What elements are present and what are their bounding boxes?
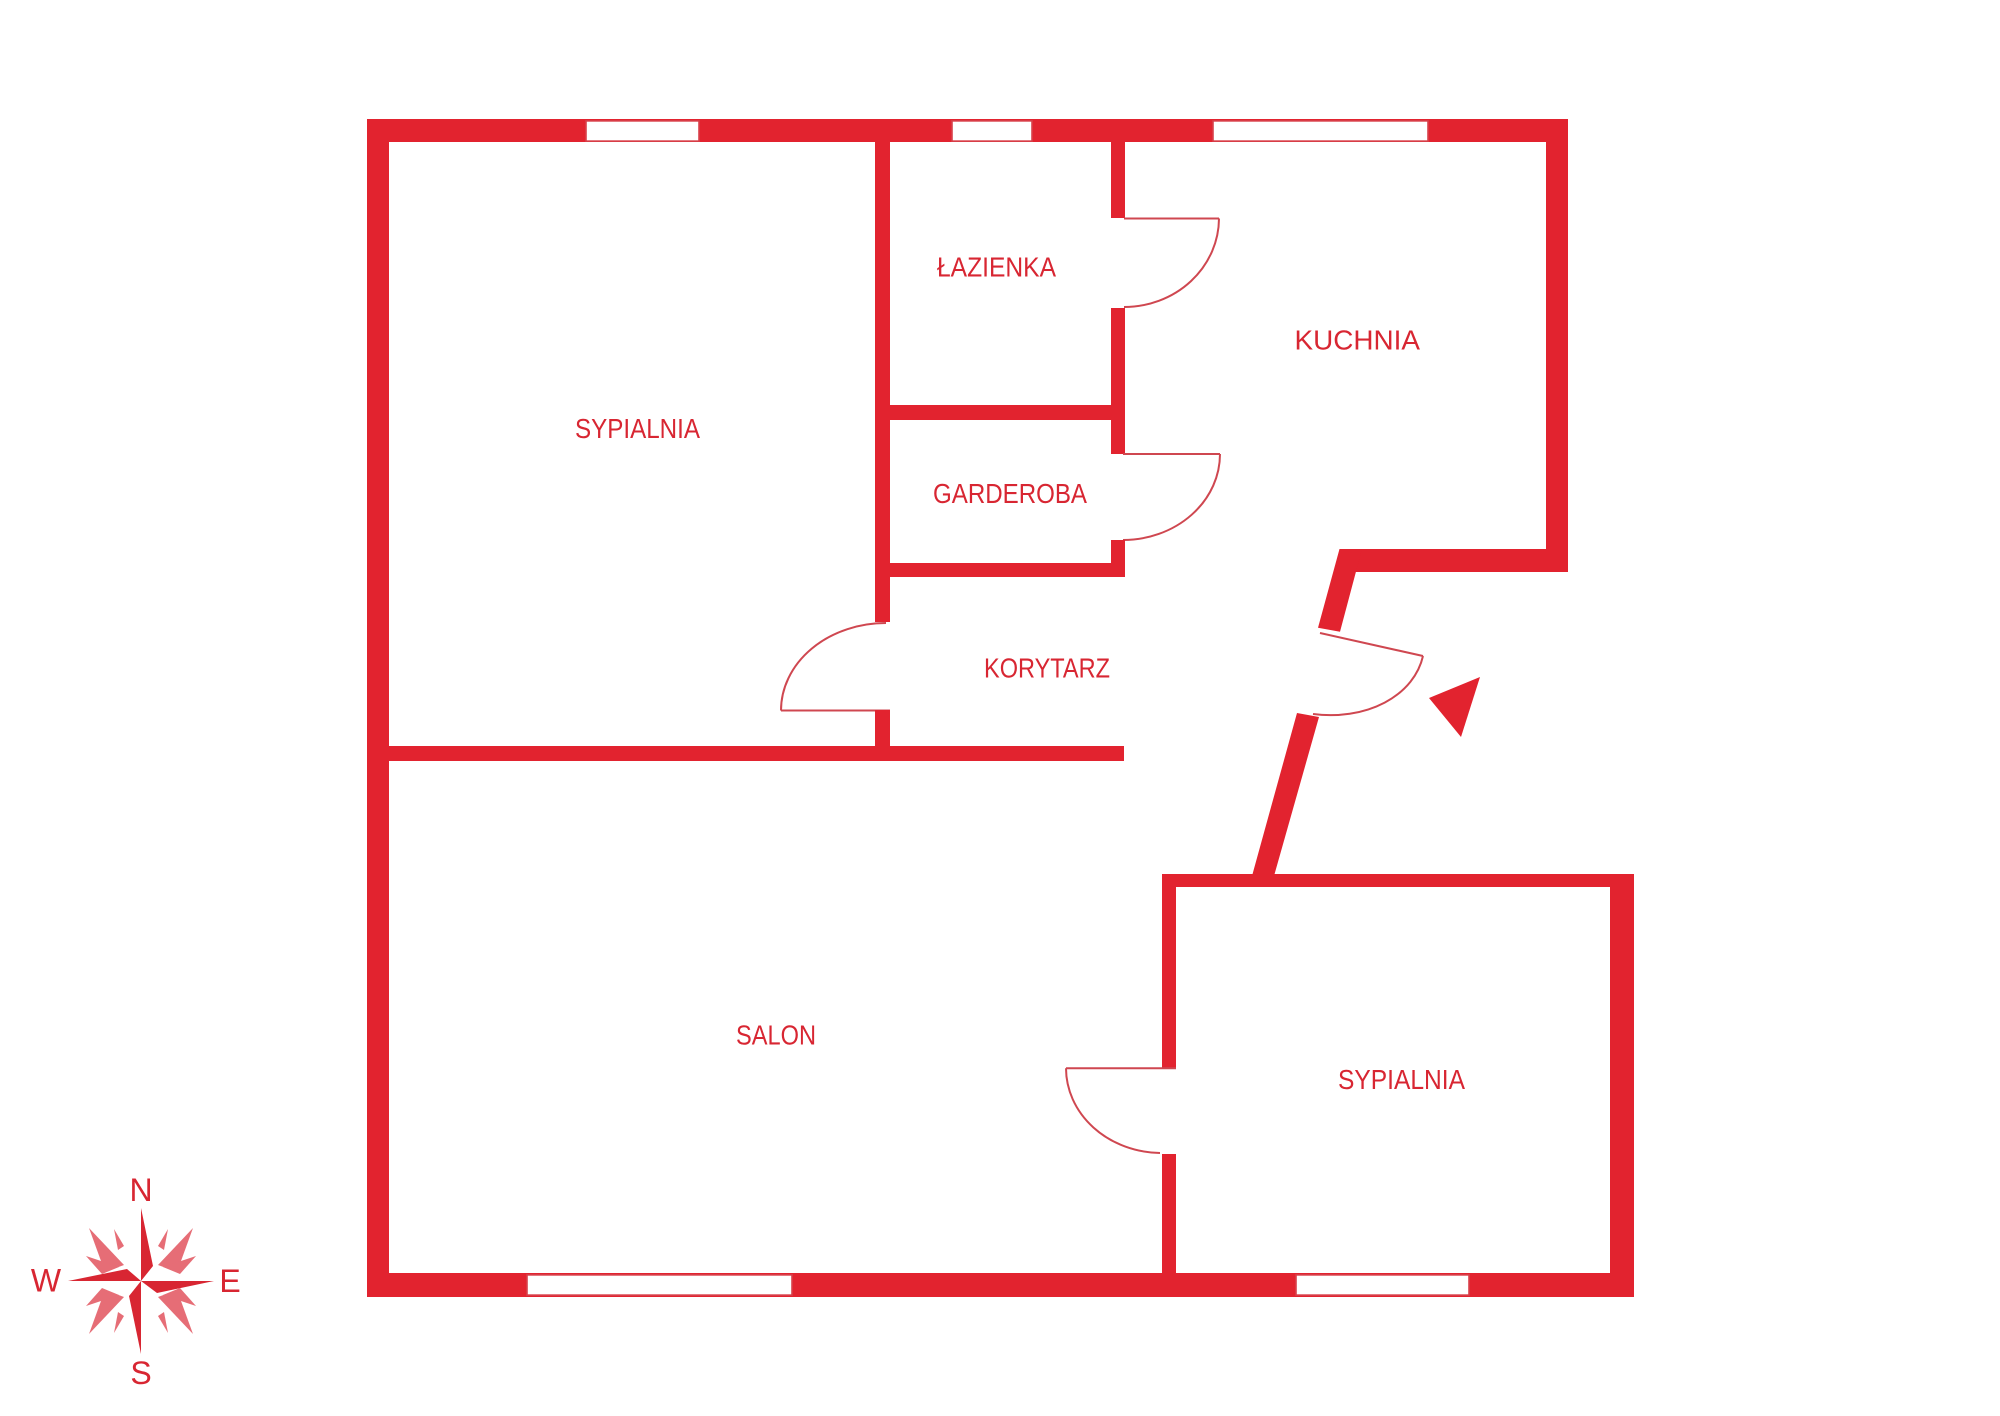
svg-text:KUCHNIA: KUCHNIA [1295, 325, 1421, 356]
svg-text:E: E [219, 1263, 240, 1299]
svg-text:W: W [31, 1263, 62, 1299]
svg-text:KORYTARZ: KORYTARZ [984, 653, 1110, 684]
svg-text:N: N [129, 1172, 152, 1208]
svg-text:S: S [130, 1355, 151, 1391]
svg-text:SYPIALNIA: SYPIALNIA [1338, 1064, 1466, 1095]
svg-text:GARDEROBA: GARDEROBA [933, 478, 1088, 509]
svg-text:ŁAZIENKA: ŁAZIENKA [937, 252, 1057, 283]
svg-text:SALON: SALON [736, 1020, 816, 1051]
svg-text:SYPIALNIA: SYPIALNIA [575, 413, 701, 444]
